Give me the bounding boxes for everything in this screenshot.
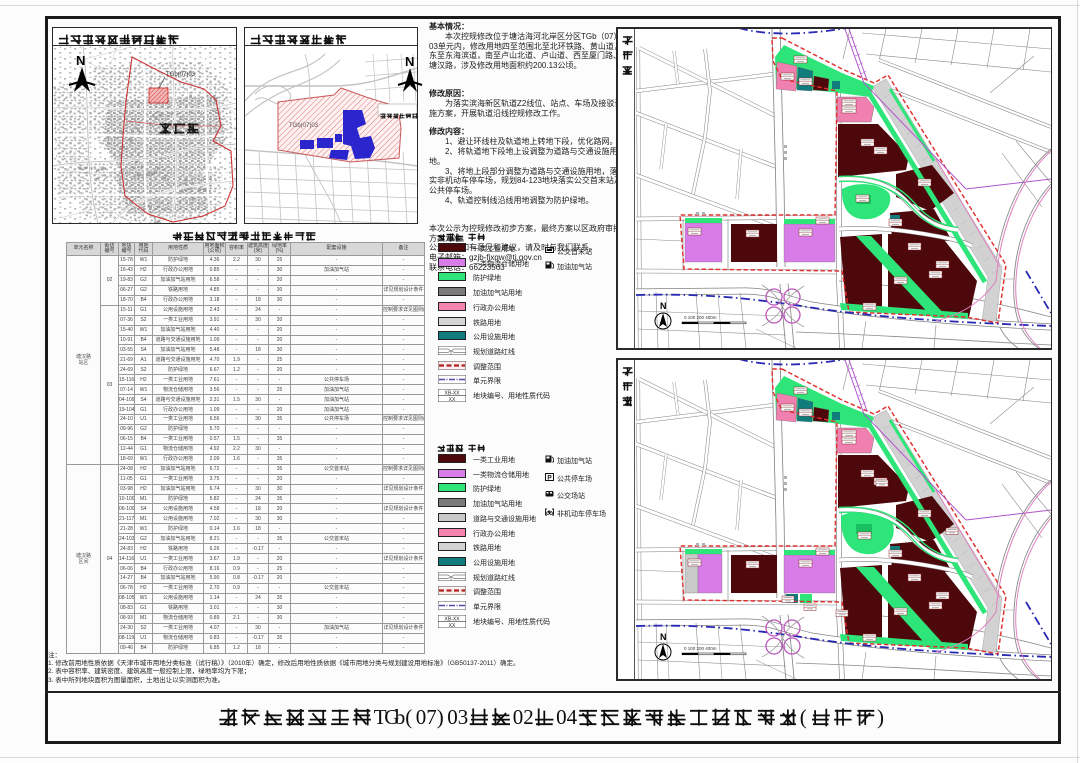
svg-text:0: 0 (415, 706, 426, 729)
svg-text:N: N (76, 53, 85, 68)
svg-text:XB-XX: XB-XX (444, 616, 460, 622)
svg-text:N: N (660, 301, 667, 311)
svg-text:0 100 200 400m: 0 100 200 400m (684, 646, 717, 651)
svg-text:P: P (547, 474, 552, 481)
svg-text:7: 7 (426, 706, 437, 729)
svg-text:): ) (877, 706, 884, 729)
svg-text:(: ( (799, 706, 806, 729)
svg-text:0: 0 (512, 706, 523, 729)
svg-text:TGb(07)03: TGb(07)03 (166, 72, 196, 78)
svg-text:0: 0 (447, 706, 458, 729)
svg-text:4: 4 (566, 706, 577, 729)
svg-text:(: ( (405, 706, 412, 729)
svg-text:TGb(07)03: TGb(07)03 (289, 123, 319, 129)
svg-text:XX: XX (449, 397, 456, 402)
svg-text:b: b (394, 706, 405, 729)
svg-text:2: 2 (523, 706, 534, 729)
svg-text:N: N (660, 632, 667, 642)
svg-text:): ) (436, 706, 443, 729)
svg-text:3: 3 (457, 706, 468, 729)
svg-text:0 100 200 400m: 0 100 200 400m (684, 315, 717, 320)
svg-text:0: 0 (556, 706, 567, 729)
svg-text:XB-XX: XB-XX (444, 391, 460, 397)
svg-text:N: N (405, 54, 414, 69)
svg-text:XX: XX (449, 623, 456, 628)
